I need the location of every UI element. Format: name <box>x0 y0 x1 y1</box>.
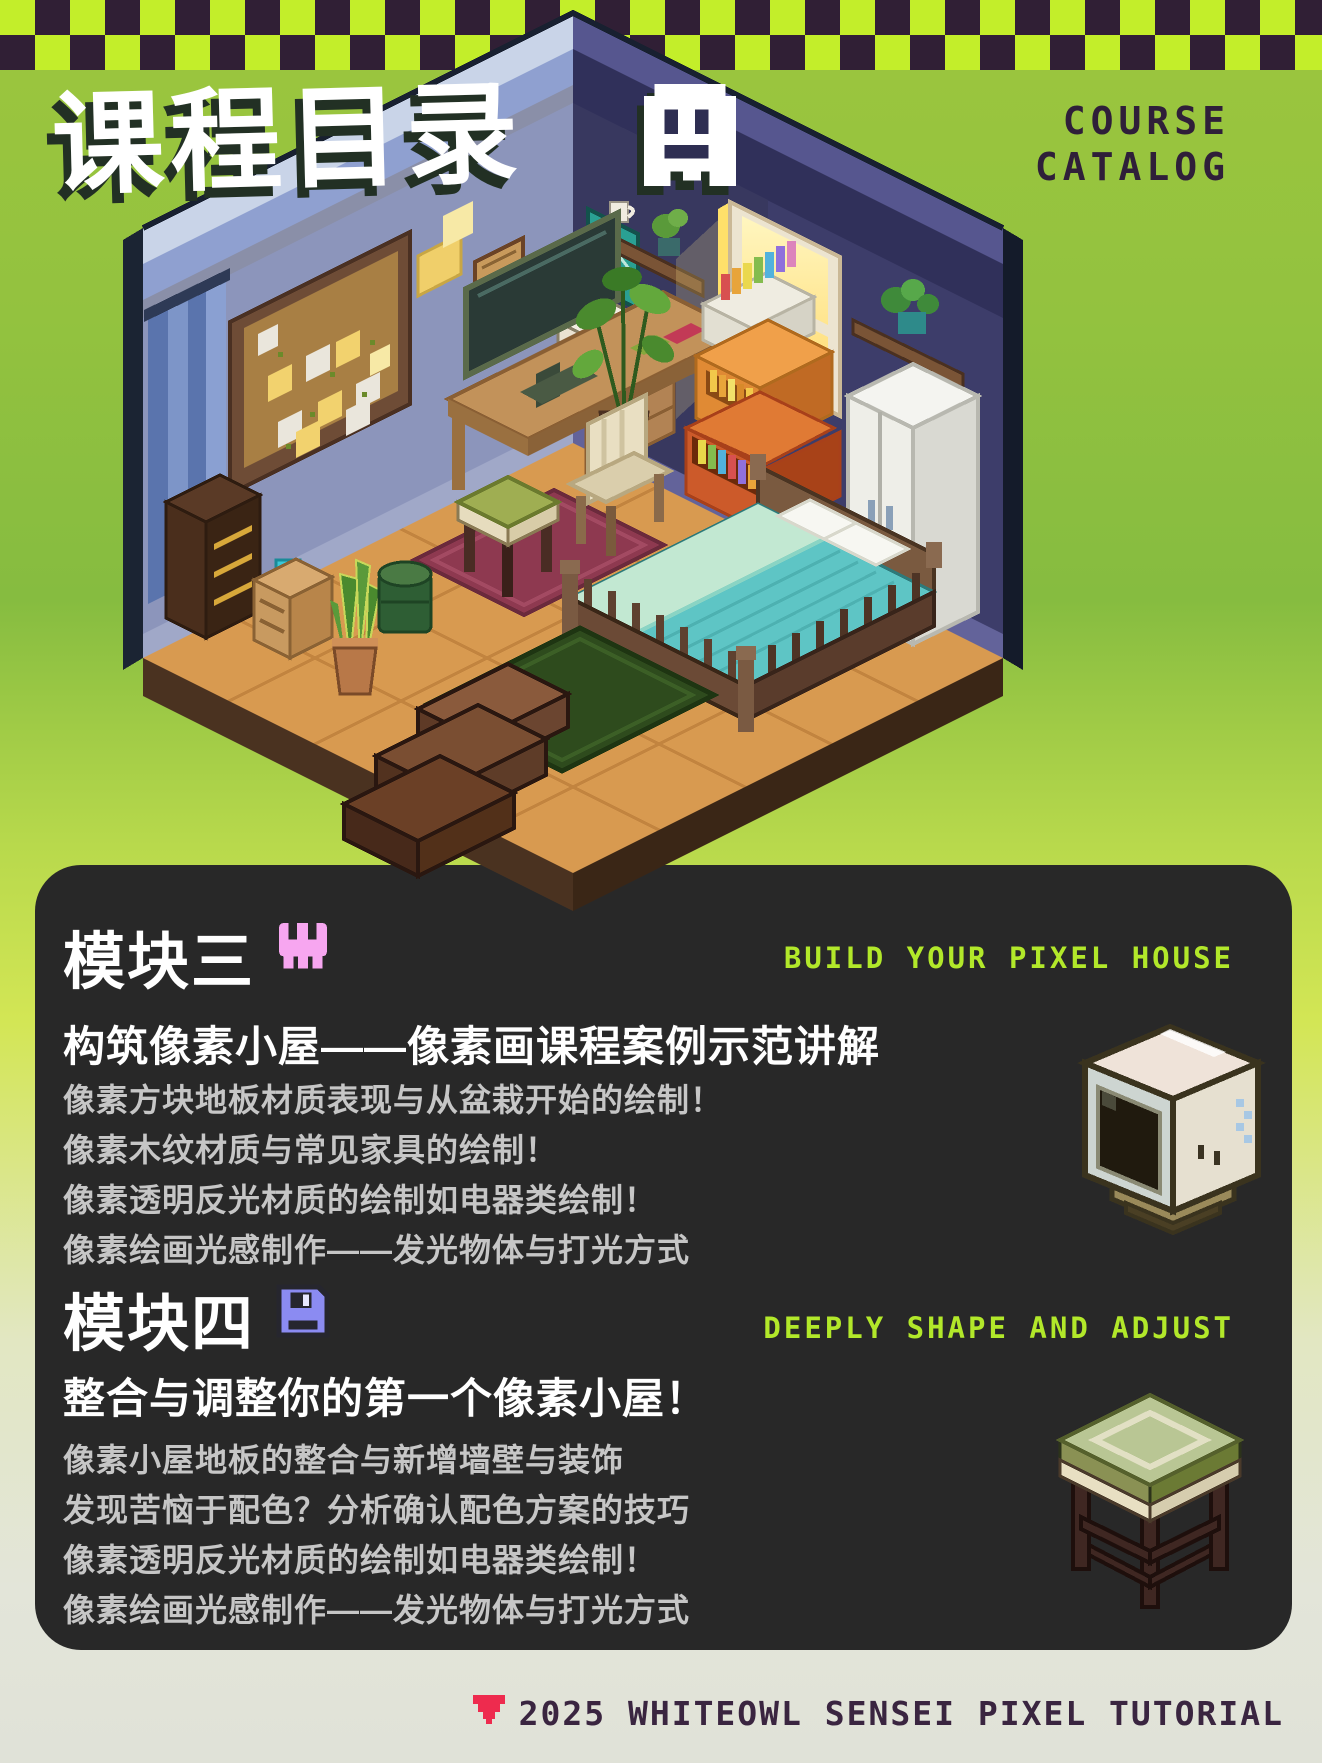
module3-line-3: 像素透明反光材质的绘制如电器类绘制！ <box>63 1175 723 1225</box>
module4-line-4: 像素绘画光感制作——发光物体与打光方式 <box>63 1585 690 1635</box>
down-triangle-icon <box>473 1694 505 1733</box>
module3-line-2: 像素木纹材质与常见家具的绘制！ <box>63 1125 723 1175</box>
module3-lines: 像素方块地板材质表现与从盆栽开始的绘制！ 像素木纹材质与常见家具的绘制！ 像素透… <box>63 1075 723 1275</box>
poster: 模块三 BUILD YOUR PIXEL HOUSE 构筑像素小屋——像素画课程… <box>0 0 1322 1763</box>
catalog-label-line2: CATALOG <box>1035 144 1230 190</box>
module3-line-4: 像素绘画光感制作——发光物体与打光方式 <box>63 1225 723 1275</box>
crate-nightstand <box>254 559 332 658</box>
module4-subtitle: 整合与调整你的第一个像素小屋！ <box>63 1365 708 1426</box>
stool-pixel-art <box>1035 1381 1265 1616</box>
catalog-label-line1: COURSE <box>1035 98 1230 144</box>
module3-subtitle: 构筑像素小屋——像素画课程案例示范讲解 <box>63 1013 880 1074</box>
module3-heading-label: 模块三 <box>63 911 255 1001</box>
skull-icon <box>275 921 331 992</box>
module3-tagline: BUILD YOUR PIXEL HOUSE <box>784 941 1234 975</box>
room-left-edge <box>123 228 143 670</box>
drawer-chest <box>166 475 260 638</box>
module4-heading-label: 模块四 <box>63 1273 255 1363</box>
footer-text: 2025 WHITEOWL SENSEI PIXEL TUTORIAL <box>519 1694 1284 1733</box>
module4-line-1: 像素小屋地板的整合与新增墙壁与装饰 <box>63 1435 690 1485</box>
room-right-edge <box>1003 228 1023 670</box>
floppy-disk-icon <box>275 1283 331 1354</box>
module4-line-2: 发现苦恼于配色？分析确认配色方案的技巧 <box>63 1485 690 1535</box>
footer: 2025 WHITEOWL SENSEI PIXEL TUTORIAL <box>473 1694 1284 1733</box>
module3-line-1: 像素方块地板材质表现与从盆栽开始的绘制！ <box>63 1075 723 1125</box>
catalog-label: COURSE CATALOG <box>1035 98 1230 190</box>
pixel-ghost-icon <box>634 84 746 201</box>
module4-line-3: 像素透明反光材质的绘制如电器类绘制！ <box>63 1535 690 1585</box>
module4-heading: 模块四 <box>63 1273 331 1363</box>
module4-tagline: DEEPLY SHAPE AND ADJUST <box>763 1311 1234 1345</box>
module3-heading: 模块三 <box>63 911 331 1001</box>
module4-lines: 像素小屋地板的整合与新增墙壁与装饰 发现苦恼于配色？分析确认配色方案的技巧 像素… <box>63 1435 690 1635</box>
crt-tv-pixel-art <box>1030 1015 1280 1245</box>
course-panel: 模块三 BUILD YOUR PIXEL HOUSE 构筑像素小屋——像素画课程… <box>35 865 1292 1650</box>
page-title: 课程目录 <box>51 78 526 202</box>
green-barrel <box>379 562 431 632</box>
